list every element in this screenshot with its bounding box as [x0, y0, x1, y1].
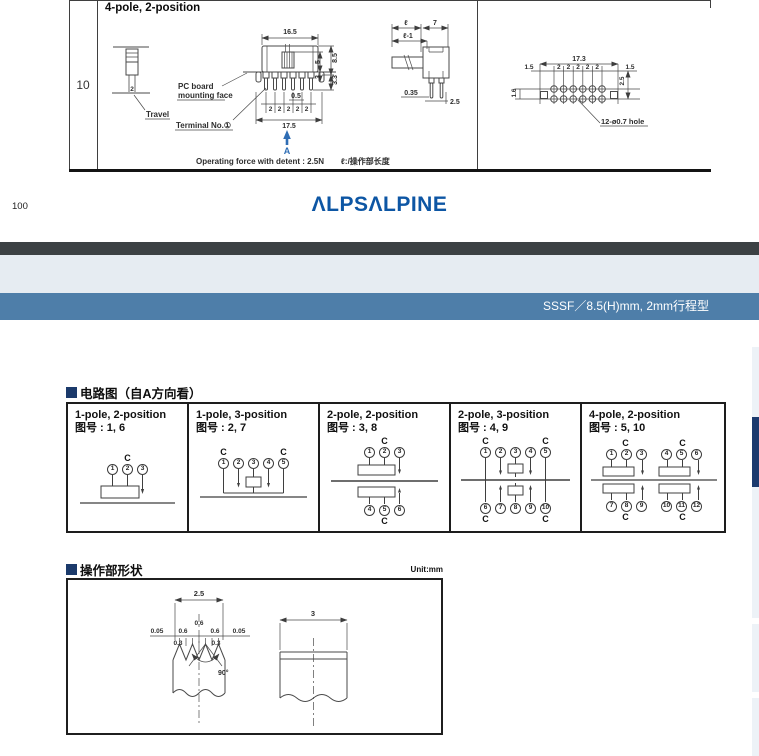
dim-3-3: 3.3: [332, 75, 339, 85]
shape-heading-text: 操作部形状: [80, 560, 143, 579]
dim-5: 5: [315, 60, 322, 64]
terminal-number: 6: [480, 503, 491, 514]
common-terminal-label: C: [618, 512, 633, 522]
common-label-row: C: [362, 516, 407, 526]
common-terminal-label: C: [377, 516, 392, 526]
common-terminal-label: [362, 516, 377, 526]
terminal-number: 2: [379, 447, 390, 458]
shape-section-heading: 操作部形状: [66, 560, 143, 579]
common-terminal-label: C: [276, 447, 291, 457]
terminal-number: 3: [394, 447, 405, 458]
hole-count-note: 12-ø0.7 hole: [601, 117, 644, 126]
dim-0-6-left: 0.6: [178, 628, 187, 635]
common-terminal-label: [493, 514, 508, 524]
dim-0-3-left: 0.3: [173, 640, 182, 647]
dim-2-5-width: 2.5: [194, 589, 204, 598]
circuit-diagram-table: 1-pole, 2-position 图号 : 1, 6 C 123 1-pol…: [66, 402, 726, 533]
terminal-number: 7: [606, 501, 617, 512]
terminal-number: 1: [606, 449, 617, 460]
terminal-row: 123456: [604, 448, 704, 460]
side-view-drawing: [392, 24, 449, 104]
common-label-row: CC: [603, 512, 705, 522]
circuit-cell-1p2p: 1-pole, 2-position 图号 : 1, 6 C 123: [68, 404, 189, 531]
circuit-fig-number: 图号 : 3, 8: [327, 422, 442, 435]
heading-square-icon: [66, 387, 77, 398]
page-header-light-bar: [0, 255, 759, 293]
common-label-row: CC: [216, 447, 291, 457]
dim-2-5: 2.5: [450, 99, 460, 106]
terminal-number: 3: [636, 449, 647, 460]
terminal-number: 5: [540, 447, 551, 458]
common-terminal-label: [508, 514, 523, 524]
terminal-row: 123: [362, 446, 407, 458]
dim-90-degrees: 90°: [218, 669, 229, 677]
dim-hole-pitch: 2: [595, 64, 599, 71]
terminal-number: 1: [107, 464, 118, 475]
terminal-row: 123: [105, 463, 150, 475]
circuit-fig-number: 图号 : 5, 10: [589, 422, 719, 435]
terminal-row: 12345: [216, 457, 291, 469]
series-title-bar: SSSF／8.5(H)mm, 2mm行程型: [0, 293, 759, 320]
dim-pitch: 2: [305, 106, 309, 113]
unit-label: Unit:mm: [411, 565, 443, 574]
dim-0-35: 0.35: [404, 90, 418, 97]
common-terminal-label: [603, 512, 618, 522]
knob-serration-drawing: [150, 600, 250, 726]
terminal-number: 2: [122, 464, 133, 475]
common-terminal-label: [105, 453, 120, 463]
common-terminal-label: C: [618, 438, 633, 448]
terminal-row: 12345: [478, 446, 553, 458]
circuit-shape: [589, 460, 719, 500]
dim-hole-pitch: 2: [576, 64, 580, 71]
common-terminal-label: [392, 436, 407, 446]
dim-0-05-right: 0.05: [233, 628, 246, 635]
common-label-row: C: [105, 453, 150, 463]
common-terminal-label: [633, 512, 648, 522]
shape-drawing-svg: 2.5 0.05 0.6 0.6 0.6 0.05 0.3 0.3 90° 3: [68, 580, 441, 733]
terminal-number: 12: [691, 501, 702, 512]
common-terminal-label: C: [538, 514, 553, 524]
circuit-fig-number: 图号 : 4, 9: [458, 422, 573, 435]
common-label-row: CC: [603, 438, 705, 448]
circuit-diagram: CC 123456: [589, 438, 719, 522]
knob-plain-drawing: [280, 620, 347, 728]
terminal-number: 1: [364, 447, 375, 458]
view-a-label: A: [284, 146, 291, 156]
circuit-shape: [75, 475, 180, 507]
length-note: ℓ:/操作部长度: [341, 156, 391, 166]
circuit-diagram: C 123: [75, 453, 180, 507]
terminal-row: 678910: [478, 502, 553, 514]
circuit-cell-1p3p: 1-pole, 3-position 图号 : 2, 7 CC 12345: [189, 404, 320, 531]
terminal-number: 2: [621, 449, 632, 460]
dim-1-5-left: 1.5: [524, 64, 533, 71]
pcb-note-line1: PC board: [178, 82, 214, 91]
common-terminal-label: [603, 438, 618, 448]
dim-1-6-vert: 1.6: [511, 88, 518, 97]
circuit-title: 4-pole, 2-position: [589, 409, 719, 422]
dim-hole-pitch: 2: [586, 64, 590, 71]
common-terminal-label: [493, 436, 508, 446]
common-terminal-label: C: [538, 436, 553, 446]
dim-hole-pitch: 2: [557, 64, 561, 71]
terminal-number: 2: [233, 458, 244, 469]
operating-force-note: Operating force with detent : 2.5N: [196, 157, 324, 166]
terminal-number: 7: [495, 503, 506, 514]
terminal-number: 4: [364, 505, 375, 516]
dim-16-5: 16.5: [283, 29, 297, 36]
terminal-number: 6: [394, 505, 405, 516]
dim-2-5-vert: 2.5: [619, 76, 626, 85]
terminal-number: 4: [661, 449, 672, 460]
dim-l-minus-1: ℓ-1: [403, 33, 413, 40]
terminal-number: 8: [510, 503, 521, 514]
dim-3-width: 3: [311, 609, 315, 618]
common-terminal-label: [246, 447, 261, 457]
circuit-title: 2-pole, 3-position: [458, 409, 573, 422]
circuit-fig-number: 图号 : 2, 7: [196, 422, 311, 435]
terminal-number: 9: [525, 503, 536, 514]
terminal-number: 3: [248, 458, 259, 469]
circuit-diagram: CC 12345 67891: [458, 436, 573, 524]
circuit-fig-number: 图号 : 1, 6: [75, 422, 180, 435]
dim-0-5: 0.5: [291, 93, 301, 100]
terminal-number: 5: [379, 505, 390, 516]
page-divider-dark-bar: [0, 242, 759, 255]
common-terminal-label: [135, 453, 150, 463]
pcb-note-line2: mounting face: [178, 91, 233, 100]
terminal-row: 456: [362, 504, 407, 516]
terminal-number: 1: [218, 458, 229, 469]
dim-1-5-right: 1.5: [625, 64, 634, 71]
edge-index-active-tab: [752, 417, 759, 487]
dim-17-5: 17.5: [282, 123, 296, 130]
terminal-number: 1: [480, 447, 491, 458]
circuit-shape: [458, 458, 573, 502]
terminal-row: 789101112: [604, 500, 704, 512]
terminal-number: 8: [621, 501, 632, 512]
series-title: SSSF／8.5(H)mm, 2mm行程型: [543, 293, 709, 320]
terminal-number: 5: [676, 449, 687, 460]
terminal-number: 11: [676, 501, 687, 512]
circuit-heading-text: 电路图（自A方向看）: [80, 383, 202, 402]
circuit-diagram: CC 12345: [196, 447, 311, 501]
dim-pitch: 2: [287, 106, 291, 113]
dim-0-6-mid: 0.6: [194, 620, 203, 627]
common-terminal-label: C: [120, 453, 135, 463]
common-terminal-label: C: [478, 514, 493, 524]
common-terminal-label: [392, 516, 407, 526]
circuit-section-heading: 电路图（自A方向看）: [66, 383, 202, 402]
terminal-number: 5: [278, 458, 289, 469]
catalog-page: 10 4-pole, 2-position: [0, 0, 759, 756]
common-terminal-label: [523, 436, 538, 446]
common-terminal-label: [660, 438, 675, 448]
travel-dim-2: 2: [130, 86, 134, 93]
common-terminal-label: C: [675, 438, 690, 448]
circuit-title: 1-pole, 3-position: [196, 409, 311, 422]
terminal-number: 3: [510, 447, 521, 458]
common-terminal-label: C: [478, 436, 493, 446]
terminal-number: 2: [495, 447, 506, 458]
circuit-cell-4p2p: 4-pole, 2-position 图号 : 5, 10 CC 123456: [582, 404, 726, 531]
edge-index-strip: [752, 624, 759, 692]
edge-index-strip: [752, 698, 759, 756]
heading-square-icon: [66, 564, 77, 575]
circuit-diagram: C 123 456 C: [327, 436, 442, 526]
circuit-shape: [327, 458, 442, 504]
common-terminal-label: C: [675, 512, 690, 522]
common-terminal-label: C: [216, 447, 231, 457]
terminal-number: 6: [691, 449, 702, 460]
dim-8-5: 8.5: [332, 53, 339, 63]
common-terminal-label: [231, 447, 246, 457]
common-terminal-label: [633, 438, 648, 448]
common-terminal-label: [523, 514, 538, 524]
dim-3: 3: [315, 75, 322, 79]
circuit-shape: [196, 469, 311, 501]
terminal-number: 9: [636, 501, 647, 512]
terminal-number: 10: [661, 501, 672, 512]
common-label-row: C: [362, 436, 407, 446]
dim-0-3-right: 0.3: [211, 640, 220, 647]
terminal-number: 3: [137, 464, 148, 475]
circuit-title: 1-pole, 2-position: [75, 409, 180, 422]
common-terminal-label: [261, 447, 276, 457]
dim-pitch: 2: [269, 106, 273, 113]
common-terminal-label: [362, 436, 377, 446]
travel-view-drawing: [112, 47, 170, 119]
common-terminal-label: C: [377, 436, 392, 446]
dim-pitch: 2: [296, 106, 300, 113]
terminal-number: 4: [525, 447, 536, 458]
circuit-cell-2p3p: 2-pole, 3-position 图号 : 4, 9 CC 12345: [451, 404, 582, 531]
circuit-cell-2p2p: 2-pole, 2-position 图号 : 3, 8 C 123: [320, 404, 451, 531]
dim-17-3: 17.3: [572, 56, 586, 63]
dim-l: ℓ: [404, 20, 408, 27]
common-label-row: CC: [478, 436, 553, 446]
dim-pitch: 2: [278, 106, 282, 113]
travel-label: Travel: [146, 110, 169, 119]
terminal-pins: [263, 72, 314, 90]
common-terminal-label: [660, 512, 675, 522]
terminal-note: Terminal No.①: [176, 121, 231, 130]
view-a-arrow: [283, 130, 291, 145]
common-label-row: CC: [478, 514, 553, 524]
dim-7: 7: [433, 20, 437, 27]
common-terminal-label: [690, 438, 705, 448]
dim-0-6-right: 0.6: [210, 628, 219, 635]
terminal-number: 4: [263, 458, 274, 469]
common-terminal-label: [508, 436, 523, 446]
common-terminal-label: [690, 512, 705, 522]
alps-alpine-logo: ΛLPSΛLPINE: [0, 193, 759, 217]
circuit-title: 2-pole, 2-position: [327, 409, 442, 422]
terminal-number: 10: [540, 503, 551, 514]
dim-0-05-left: 0.05: [151, 628, 164, 635]
dim-hole-pitch: 2: [567, 64, 571, 71]
